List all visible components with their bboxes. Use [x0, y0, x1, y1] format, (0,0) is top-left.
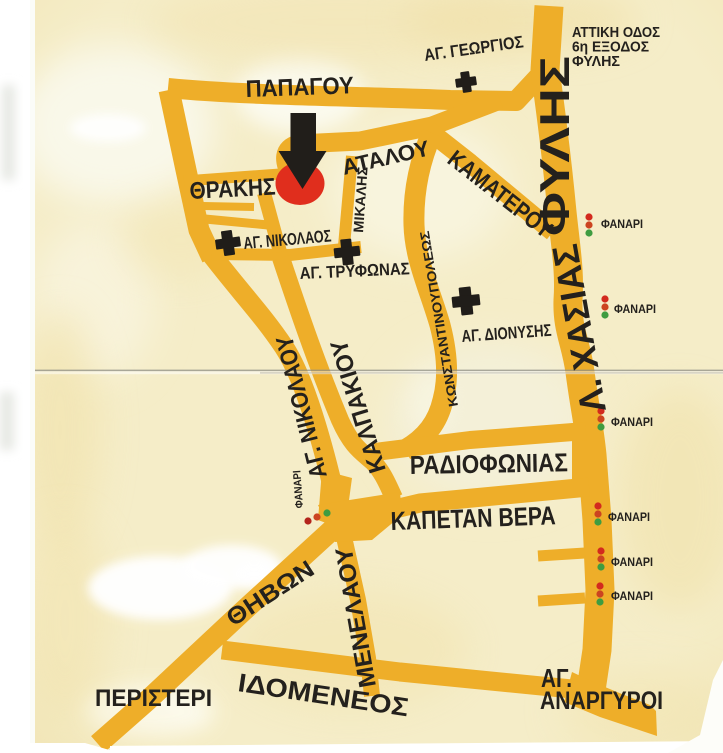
svg-text:ΦΑΝΑΡΙ: ΦΑΝΑΡΙ [614, 302, 656, 316]
svg-text:ΦΑΝΑΡΙ: ΦΑΝΑΡΙ [601, 217, 643, 231]
svg-text:ΘΡΑΚΗΣ: ΘΡΑΚΗΣ [189, 174, 276, 205]
svg-text:ΦΑΝΑΡΙ: ΦΑΝΑΡΙ [611, 589, 653, 603]
svg-text:ΦΑΝΑΡΙ: ΦΑΝΑΡΙ [611, 555, 653, 569]
svg-text:ΦΑΝΑΡΙ: ΦΑΝΑΡΙ [608, 510, 650, 524]
svg-text:ΑΝΑΡΓΥΡΟΙ: ΑΝΑΡΓΥΡΟΙ [540, 687, 663, 715]
svg-text:ΦΥΛΗΣ: ΦΥΛΗΣ [531, 56, 578, 236]
svg-text:ΦΑΝΑΡΙ: ΦΑΝΑΡΙ [611, 415, 653, 429]
svg-text:ΠΑΠΑΓΟΥ: ΠΑΠΑΓΟΥ [245, 72, 354, 103]
svg-text:ΡΑΔΙΟΦΩΝΙΑΣ: ΡΑΔΙΟΦΩΝΙΑΣ [410, 447, 568, 480]
svg-text:ΦΥΛΗΣ: ΦΥΛΗΣ [572, 54, 620, 70]
svg-text:ΚΑΠΕΤΑΝ ΒΕΡΑ: ΚΑΠΕΤΑΝ ΒΕΡΑ [390, 500, 556, 536]
svg-text:ΠΕΡΙΣΤΕΡΙ: ΠΕΡΙΣΤΕΡΙ [95, 685, 212, 712]
